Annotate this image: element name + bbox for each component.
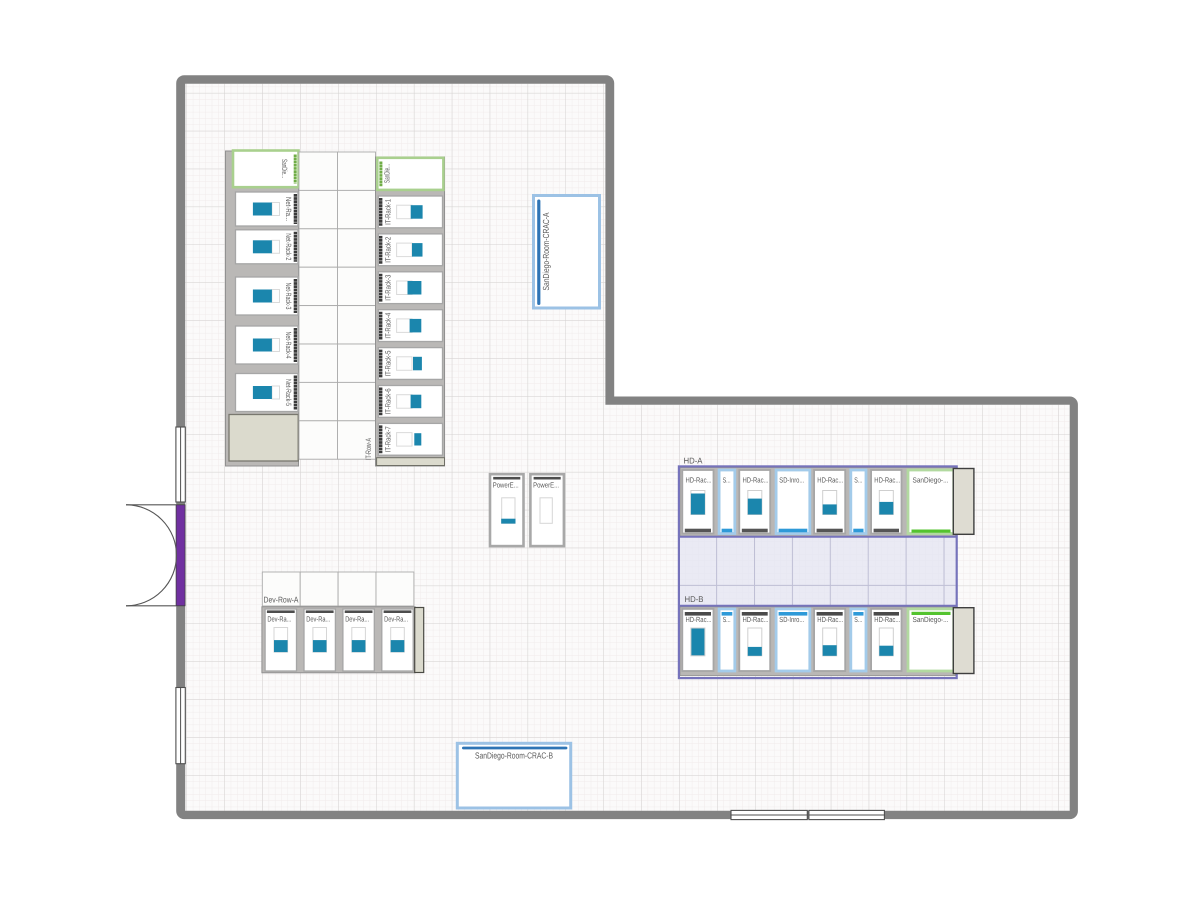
svg-text:HD-Rac...: HD-Rac...: [874, 476, 900, 485]
svg-text:HD-Rac...: HD-Rac...: [686, 615, 712, 624]
svg-text:HD-Rac...: HD-Rac...: [743, 476, 769, 485]
svg-text:Net-Rack-4: Net-Rack-4: [284, 332, 293, 359]
svg-text:SanDiego-Room-CRAC-A: SanDiego-Room-CRAC-A: [541, 212, 551, 290]
svg-text:SD-Inro...: SD-Inro...: [779, 615, 804, 624]
svg-text:PowerE...: PowerE...: [493, 481, 519, 490]
svg-text:HD-Rac...: HD-Rac...: [743, 615, 769, 624]
svg-text:HD-Rac...: HD-Rac...: [817, 615, 843, 624]
svg-text:S...: S...: [854, 615, 862, 624]
svg-text:SD-Inro...: SD-Inro...: [779, 476, 804, 485]
svg-text:IT-Rack-6: IT-Rack-6: [383, 388, 392, 414]
svg-text:HD-B: HD-B: [685, 594, 704, 604]
svg-text:HD-Rac...: HD-Rac...: [817, 476, 843, 485]
svg-text:Net-Rack-2: Net-Rack-2: [284, 233, 293, 260]
svg-text:IT-Rack-1: IT-Rack-1: [383, 199, 392, 225]
svg-text:HD-A: HD-A: [684, 456, 703, 466]
svg-text:Dev-Ra...: Dev-Ra...: [384, 615, 408, 624]
svg-text:Net-Rack-3: Net-Rack-3: [284, 283, 293, 310]
svg-text:HD-Rac...: HD-Rac...: [874, 615, 900, 624]
svg-text:S...: S...: [723, 476, 731, 485]
svg-text:S...: S...: [854, 476, 862, 485]
svg-text:SanDiego-...: SanDiego-...: [913, 476, 949, 485]
svg-text:IT-Rack-7: IT-Rack-7: [383, 426, 392, 452]
svg-text:IT-Row-A: IT-Row-A: [364, 437, 373, 460]
svg-text:Dev-Ra...: Dev-Ra...: [345, 615, 369, 624]
svg-text:SanDiego-...: SanDiego-...: [913, 615, 949, 624]
svg-text:SanDiego-Room-CRAC-B: SanDiego-Room-CRAC-B: [475, 751, 553, 761]
svg-text:IT-Rack-4: IT-Rack-4: [383, 313, 392, 339]
svg-text:Net-Ra...: Net-Ra...: [284, 197, 293, 221]
svg-text:PowerE...: PowerE...: [533, 481, 559, 490]
svg-text:Dev-Ra...: Dev-Ra...: [306, 615, 330, 624]
svg-text:IT-Rack-3: IT-Rack-3: [383, 275, 392, 301]
svg-text:SanDie...: SanDie...: [382, 164, 391, 183]
svg-text:HD-Rac...: HD-Rac...: [686, 476, 712, 485]
svg-text:SanDie...: SanDie...: [280, 159, 289, 178]
svg-text:Net-Rack-5: Net-Rack-5: [284, 379, 293, 406]
svg-text:S...: S...: [723, 615, 731, 624]
svg-text:IT-Rack-5: IT-Rack-5: [383, 351, 392, 377]
svg-text:Dev-Row-A: Dev-Row-A: [264, 595, 299, 605]
svg-text:IT-Rack-2: IT-Rack-2: [383, 237, 392, 263]
svg-text:Dev-Ra...: Dev-Ra...: [267, 615, 291, 624]
